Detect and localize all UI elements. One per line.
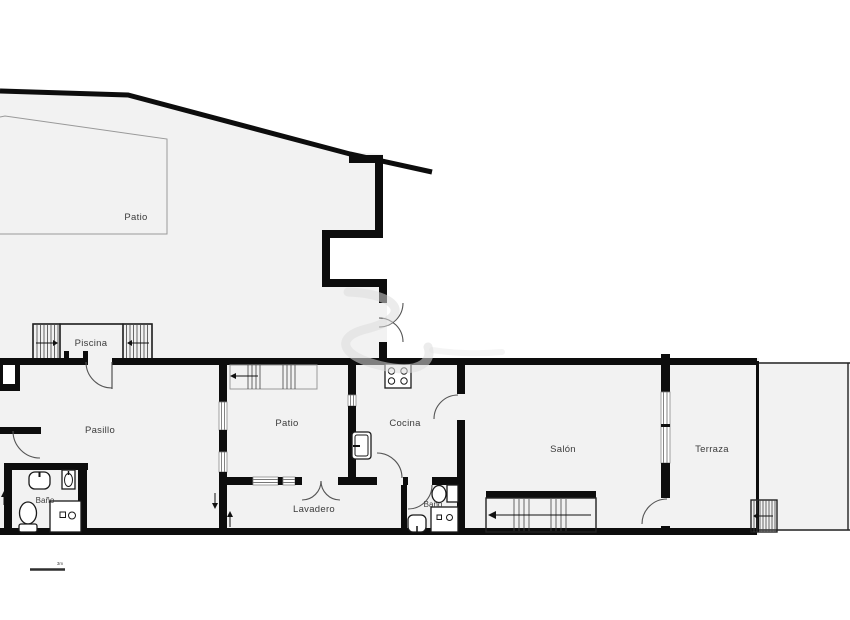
patio-wall-right-upper <box>375 155 383 238</box>
wall-patio-cocina <box>348 358 356 483</box>
room-label-patio-inner: Patio <box>275 418 298 429</box>
floor-plan-page: Patio Piscina <box>0 0 850 620</box>
room-label-patio-garden: Patio <box>124 212 147 223</box>
wall-bano1-top <box>4 463 88 470</box>
window-pasillo-2 <box>219 452 227 472</box>
room-label-bano2: Baño <box>424 500 443 509</box>
room-label-pasillo: Pasillo <box>85 425 115 436</box>
room-label-lavadero: Lavadero <box>293 504 335 515</box>
window-salon-terraza <box>661 392 670 463</box>
room-label-salon: Salón <box>550 444 576 455</box>
shower-icon <box>431 507 458 532</box>
window-patio-1 <box>253 477 278 485</box>
toilet-icon <box>19 502 37 532</box>
washbasin-icon <box>62 470 75 489</box>
room-label-bano1: Baño <box>36 496 55 505</box>
scale-label: 3m <box>57 561 64 566</box>
bathroom-sink-icon <box>29 472 50 489</box>
patio-notch-wall-top <box>322 230 383 238</box>
window-pasillo-1 <box>219 402 227 430</box>
pool-gate-post <box>83 351 88 359</box>
wall-terraza-right <box>756 361 759 532</box>
window-cocina <box>348 395 356 406</box>
wall-bano1-left <box>4 463 12 534</box>
floor-plan-svg: Patio Piscina <box>0 0 850 620</box>
wall-corridor-stub <box>0 427 41 434</box>
room-label-cocina: Cocina <box>389 418 421 429</box>
room-label-terraza: Terraza <box>695 444 729 455</box>
window-patio-2 <box>283 477 295 485</box>
niche <box>0 358 20 391</box>
pool-gate-post <box>64 351 69 359</box>
toilet-icon <box>408 515 426 532</box>
house-floor <box>0 358 759 535</box>
room-label-piscina: Piscina <box>75 338 108 349</box>
shower-icon <box>50 501 81 532</box>
patio-notch-wall-left <box>322 230 330 287</box>
top-wall-main <box>112 358 757 365</box>
bottom-wall-main <box>0 528 757 535</box>
kitchen-sink-icon <box>352 432 371 459</box>
terraza2-floor <box>757 362 850 531</box>
patio-notch-wall-bottom <box>322 279 387 287</box>
wall-pasillo-patio <box>219 358 227 534</box>
wall-bano2-left <box>401 485 407 534</box>
